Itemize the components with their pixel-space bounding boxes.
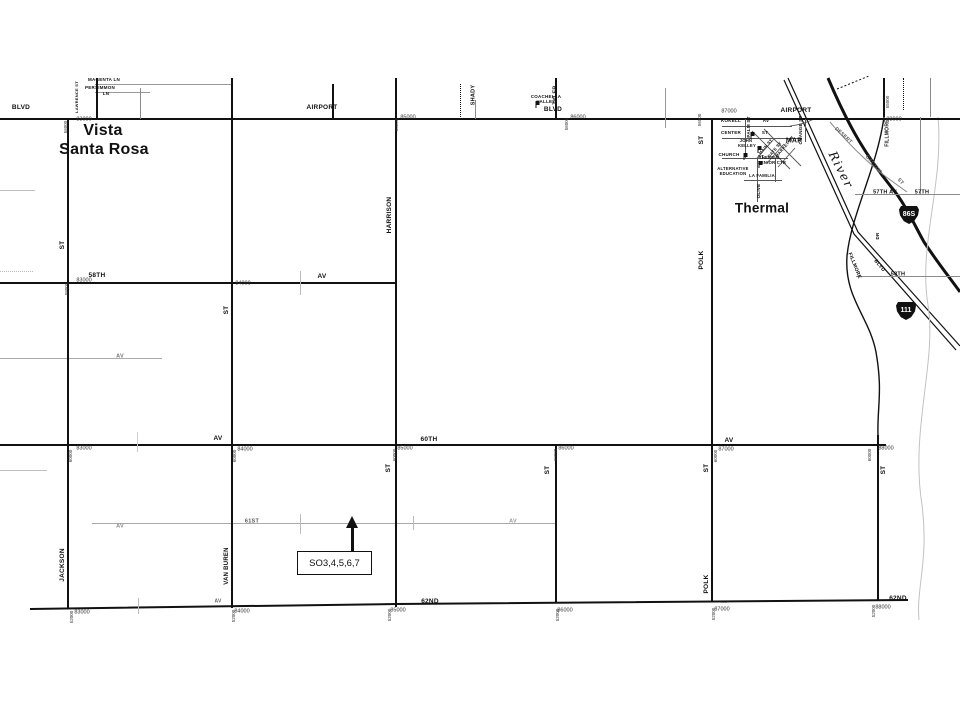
callout-arrow-line bbox=[351, 527, 354, 551]
grid-number: 56000 bbox=[64, 121, 69, 134]
grid-number: 60000 bbox=[868, 449, 873, 462]
road-vertical bbox=[137, 432, 138, 452]
road-horizontal bbox=[0, 282, 396, 284]
street-label: KOKELL bbox=[721, 119, 741, 124]
grid-number: 60000 bbox=[714, 450, 719, 463]
grid-number: 56000 bbox=[565, 118, 570, 131]
street-label: VAN BUREN bbox=[224, 547, 230, 584]
grid-number: 60000 bbox=[69, 450, 74, 463]
grid-number: 85000 bbox=[397, 446, 412, 452]
street-label: ST bbox=[762, 131, 768, 136]
road-horizontal bbox=[855, 194, 960, 195]
road-horizontal bbox=[0, 470, 47, 471]
school-flag-icon bbox=[759, 161, 764, 168]
street-label: AV bbox=[116, 524, 124, 530]
callout-arrow-head-icon bbox=[346, 516, 358, 528]
grid-number: 83000 bbox=[76, 446, 91, 452]
street-label: AV bbox=[213, 436, 222, 443]
road-path bbox=[784, 80, 956, 350]
street-label: 57TH bbox=[915, 190, 929, 196]
street-label: ST bbox=[60, 241, 67, 250]
road-horizontal bbox=[0, 444, 886, 447]
grid-number: 87000 bbox=[718, 447, 733, 453]
place-label: Thermal bbox=[735, 201, 789, 215]
street-label: FILLMORE bbox=[886, 119, 891, 147]
street-label: JACKSON bbox=[60, 548, 67, 582]
grid-number: 56000 bbox=[698, 114, 703, 127]
street-label: AV bbox=[116, 354, 124, 360]
street-label: ST bbox=[545, 466, 552, 475]
grid-number: 60000 bbox=[393, 449, 398, 462]
street-label: POLK bbox=[704, 574, 711, 593]
road-vertical bbox=[140, 88, 141, 119]
place-label: Vista bbox=[83, 123, 122, 139]
road-vertical bbox=[711, 119, 713, 601]
road-horizontal bbox=[856, 276, 960, 277]
grid-number: 84000 bbox=[235, 281, 250, 287]
grid-number: 83000 bbox=[76, 117, 91, 123]
map-page: VistaSanta RosaThermalRiverBLVDAIRPORTBL… bbox=[0, 0, 960, 720]
road-horizontal bbox=[0, 358, 162, 359]
road-vertical bbox=[413, 516, 414, 530]
place-label: Santa Rosa bbox=[59, 142, 149, 158]
road-horizontal bbox=[0, 190, 35, 191]
road-vertical bbox=[332, 84, 334, 119]
grid-number: 60000 bbox=[554, 449, 559, 462]
school-flag-icon bbox=[751, 132, 756, 139]
street-label: ST bbox=[224, 306, 231, 315]
street-label: AIRPORT bbox=[307, 105, 338, 112]
street-label: LA FAMILIA bbox=[749, 174, 775, 178]
map-footer: Map 3 North 1 mile bbox=[0, 596, 960, 720]
street-label: SHADY bbox=[471, 85, 477, 106]
street-label: AV bbox=[317, 274, 326, 281]
street-label: CENTER bbox=[721, 131, 741, 136]
road-vertical bbox=[930, 78, 931, 117]
school-flag-icon bbox=[758, 146, 763, 153]
street-label: MAGENTA LN bbox=[88, 78, 120, 83]
road-horizontal bbox=[744, 180, 782, 181]
grid-number: 55000 bbox=[886, 96, 891, 109]
street-label: KELLEY bbox=[738, 144, 756, 148]
road-vertical bbox=[920, 117, 921, 194]
road-vertical bbox=[460, 84, 462, 119]
street-label: PERSIMMON bbox=[85, 86, 115, 91]
school-flag-icon bbox=[536, 101, 541, 108]
map-canvas: VistaSanta RosaThermalRiverBLVDAIRPORTBL… bbox=[0, 0, 960, 640]
grid-number: 86000 bbox=[570, 115, 585, 121]
street-label: HARRISON bbox=[387, 197, 394, 234]
street-label: BLVD bbox=[12, 105, 30, 112]
road-horizontal bbox=[722, 126, 792, 127]
road-horizontal bbox=[95, 84, 232, 85]
street-label: AV bbox=[724, 438, 733, 445]
road-path bbox=[837, 76, 869, 89]
grid-number: 58000 bbox=[65, 283, 70, 296]
road-vertical bbox=[805, 119, 806, 142]
street-label: LAWRENCE ST bbox=[75, 81, 79, 113]
road-horizontal bbox=[92, 523, 556, 524]
road-vertical bbox=[395, 78, 398, 607]
street-label: AV bbox=[763, 119, 769, 124]
road-vertical bbox=[300, 271, 301, 295]
road-vertical bbox=[877, 435, 879, 600]
street-label: CHURCH bbox=[719, 153, 740, 158]
street-label: LN bbox=[103, 92, 110, 97]
street-label: 58TH bbox=[891, 272, 905, 278]
road-vertical bbox=[665, 88, 666, 128]
grid-number: 86000 bbox=[558, 446, 573, 452]
street-label: ST bbox=[881, 466, 888, 475]
street-label: DR bbox=[876, 233, 881, 240]
street-label: AIRPORT bbox=[781, 108, 812, 115]
road-vertical bbox=[555, 445, 557, 602]
grid-number: 56000 bbox=[395, 119, 400, 132]
road-vertical bbox=[67, 119, 69, 608]
grid-number: 83000 bbox=[76, 278, 91, 284]
callout-box: SO3,4,5,6,7 bbox=[297, 551, 372, 575]
road-vertical bbox=[903, 78, 905, 110]
street-label: 57TH AV bbox=[873, 190, 897, 196]
school-flag-icon bbox=[744, 153, 749, 160]
grid-number: 88000 bbox=[878, 446, 893, 452]
grid-number: 85000 bbox=[400, 115, 415, 121]
grid-number: 87000 bbox=[721, 109, 736, 115]
street-label: 61ST bbox=[245, 519, 259, 525]
grid-number: 60000 bbox=[233, 450, 238, 463]
street-label: ST bbox=[386, 464, 393, 473]
grid-number: 88000 bbox=[886, 117, 901, 123]
street-label: POLK bbox=[699, 250, 706, 269]
street-label: ST bbox=[704, 464, 711, 473]
callout-text: SO3,4,5,6,7 bbox=[309, 558, 360, 569]
street-label: BLVD bbox=[544, 107, 562, 114]
road-horizontal bbox=[0, 271, 33, 273]
grid-number: 84000 bbox=[237, 447, 252, 453]
street-label: AV bbox=[509, 519, 517, 525]
street-label: ST bbox=[699, 136, 706, 145]
street-label: OLIVE bbox=[757, 184, 762, 199]
street-label: 60TH bbox=[421, 437, 438, 444]
road-vertical bbox=[300, 514, 301, 534]
road-horizontal bbox=[0, 118, 960, 121]
road-vertical bbox=[231, 78, 232, 608]
street-label: EDUCATION bbox=[720, 172, 747, 176]
